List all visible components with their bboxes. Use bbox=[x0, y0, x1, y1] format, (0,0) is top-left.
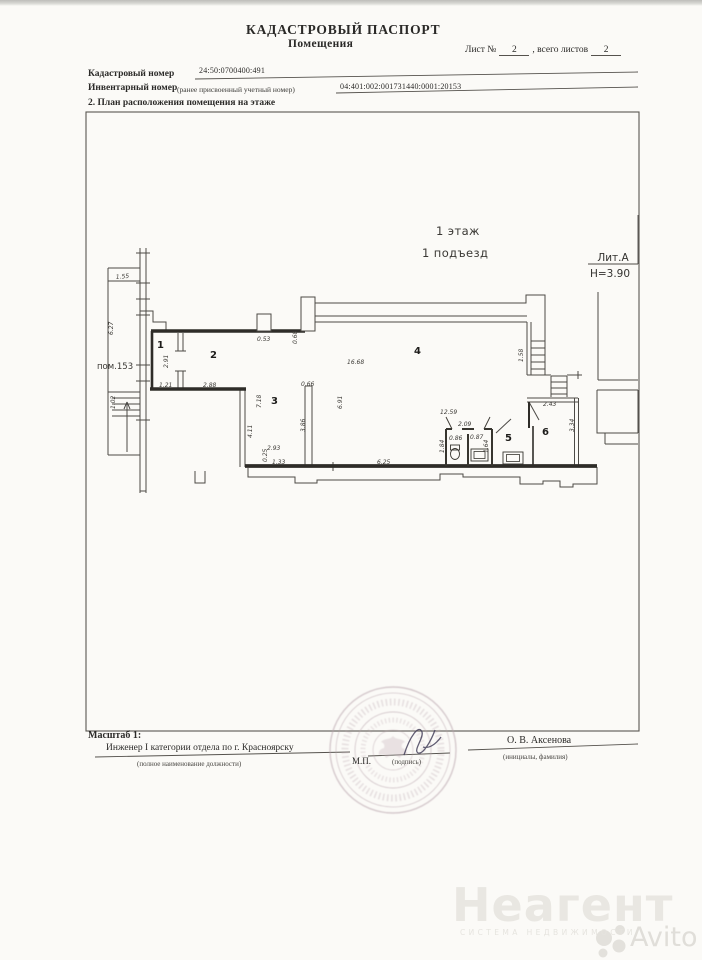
dimension-label: 6.27 bbox=[108, 321, 115, 335]
room-number-label: 1 bbox=[157, 340, 164, 351]
position-value: Инженер I категории отдела по г. Красноя… bbox=[106, 743, 294, 753]
plan-thin-walls bbox=[108, 248, 638, 493]
dimension-label: 2.93 bbox=[267, 445, 281, 452]
dimension-label: 0.25 bbox=[262, 448, 269, 462]
premise-label: пом.153 bbox=[97, 362, 133, 372]
room-number-label: 2 bbox=[210, 350, 217, 361]
dimension-label: 0.68 bbox=[292, 330, 299, 344]
official-stamp bbox=[330, 687, 456, 813]
dimension-label: 2.88 bbox=[203, 382, 217, 389]
signatory-name: О. В. Аксенова bbox=[507, 735, 571, 746]
dimension-label: 0.87 bbox=[470, 434, 484, 441]
room-number-label: 6 bbox=[542, 427, 549, 438]
watermark-avito-text: Avito bbox=[630, 922, 697, 953]
dimension-label: 1.64 bbox=[483, 439, 490, 453]
dimension-label: 2.43 bbox=[543, 401, 557, 408]
liter-label: Лит.А bbox=[597, 252, 629, 264]
entrance-label: 1 подъезд bbox=[422, 246, 488, 260]
dimension-label: 12.59 bbox=[440, 409, 457, 416]
position-note: (полное наименование должности) bbox=[137, 760, 241, 768]
stamp-place-label: М.П. bbox=[352, 756, 371, 766]
dimension-label: 2.91 bbox=[163, 355, 170, 368]
dimension-label: 0.66 bbox=[301, 381, 315, 388]
dimension-label: 1.55 bbox=[116, 273, 130, 281]
scanned-cadastral-passport-page: { "header": { "title_line1": "КАДАСТРОВЫ… bbox=[0, 0, 702, 960]
wall-pilasters bbox=[257, 297, 315, 331]
dimension-label: 3.86 bbox=[300, 418, 307, 432]
signature-note: (подпись) bbox=[392, 758, 421, 766]
dimension-label: 2.09 bbox=[458, 421, 472, 428]
dimension-label: 1.84 bbox=[439, 439, 446, 453]
room-number-label: 3 bbox=[271, 396, 278, 407]
floor-label: 1 этаж bbox=[436, 224, 480, 238]
watermark-brand-subtitle: СИСТЕМА НЕДВИЖИМОСТИ bbox=[460, 928, 636, 937]
dimension-label: 1.33 bbox=[272, 459, 286, 466]
plan-section-border bbox=[86, 112, 639, 731]
sink-fixture-icon bbox=[503, 452, 523, 464]
room-number-label: 4 bbox=[414, 346, 421, 357]
room-number-label: 5 bbox=[505, 433, 512, 444]
plan-thick-walls bbox=[150, 331, 597, 467]
dimension-label: 7.18 bbox=[256, 394, 263, 408]
dimension-label: 0.53 bbox=[257, 336, 271, 343]
scale-label: Масштаб 1: bbox=[88, 730, 141, 741]
floor-plan-drawing: 1 этаж 1 подъезд Лит.А H=3.90 bbox=[0, 0, 702, 960]
dimension-label: 1.21 bbox=[159, 382, 172, 389]
dimension-label: 1.02 bbox=[110, 395, 117, 409]
dimension-label: 4.11 bbox=[247, 425, 254, 438]
dimension-label: 1.58 bbox=[518, 348, 525, 362]
dimension-label: 6.25 bbox=[377, 459, 391, 466]
dimension-label: 16.68 bbox=[347, 359, 364, 366]
height-label: H=3.90 bbox=[590, 268, 630, 280]
signature-mark bbox=[404, 729, 441, 755]
header-rule-lines bbox=[195, 72, 638, 93]
name-note: (инициалы, фамилия) bbox=[503, 753, 568, 761]
dimension-label: 0.86 bbox=[449, 435, 463, 442]
dimension-label: 3.34 bbox=[569, 418, 576, 432]
plan-annotations: 1 этаж 1 подъезд Лит.А H=3.90 bbox=[422, 215, 638, 280]
dimension-label: 6.91 bbox=[337, 396, 344, 409]
